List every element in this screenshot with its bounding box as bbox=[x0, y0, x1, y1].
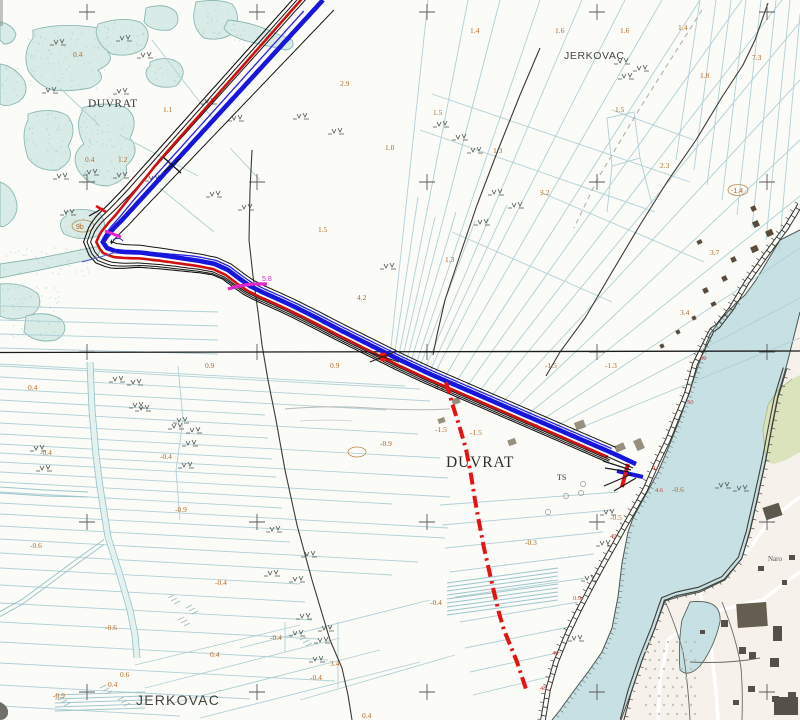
svg-text:DUVRAT: DUVRAT bbox=[446, 454, 514, 471]
svg-text:JERKOVAC: JERKOVAC bbox=[136, 692, 220, 708]
svg-text:2.3: 2.3 bbox=[660, 161, 670, 170]
svg-text:-0.4: -0.4 bbox=[310, 673, 322, 682]
svg-text:-1.4: -1.4 bbox=[731, 188, 743, 195]
svg-text:-1.5: -1.5 bbox=[435, 425, 447, 434]
svg-text:-0.4: -0.4 bbox=[270, 633, 282, 642]
svg-text:-0.4: -0.4 bbox=[160, 452, 172, 461]
svg-text:1.6: 1.6 bbox=[620, 26, 630, 35]
svg-text:-0.4: -0.4 bbox=[40, 448, 52, 457]
svg-text:0.4: 0.4 bbox=[73, 50, 83, 59]
svg-text:3.4: 3.4 bbox=[330, 659, 340, 668]
svg-text:0.4: 0.4 bbox=[362, 711, 372, 720]
svg-text:4.9: 4.9 bbox=[652, 465, 660, 472]
svg-text:49: 49 bbox=[552, 650, 559, 657]
svg-text:0.4: 0.4 bbox=[108, 680, 118, 689]
svg-text:-0.9: -0.9 bbox=[380, 439, 392, 448]
svg-text:50: 50 bbox=[700, 355, 707, 362]
svg-text:7.3: 7.3 bbox=[752, 53, 762, 62]
svg-text:-1.3: -1.3 bbox=[605, 361, 617, 370]
svg-text:-0.4: -0.4 bbox=[430, 598, 442, 607]
svg-text:50: 50 bbox=[687, 399, 694, 406]
svg-text:0.6: 0.6 bbox=[120, 670, 130, 679]
svg-text:DUVRAT: DUVRAT bbox=[88, 98, 138, 110]
svg-text:JERKOVAC: JERKOVAC bbox=[564, 50, 625, 62]
svg-text:3.4: 3.4 bbox=[680, 308, 690, 317]
svg-text:1.5: 1.5 bbox=[318, 225, 328, 234]
svg-text:-0.6: -0.6 bbox=[30, 541, 42, 550]
svg-text:48: 48 bbox=[540, 685, 547, 692]
svg-text:1.6: 1.6 bbox=[555, 26, 565, 35]
svg-text:0.9: 0.9 bbox=[205, 361, 215, 370]
svg-text:-0.9: -0.9 bbox=[53, 691, 65, 700]
svg-text:-1.5: -1.5 bbox=[545, 361, 557, 370]
svg-text:4.6: 4.6 bbox=[655, 487, 664, 494]
svg-text:-0.6: -0.6 bbox=[105, 623, 117, 632]
svg-text:-0.9: -0.9 bbox=[175, 505, 187, 514]
svg-text:Naro: Naro bbox=[768, 555, 782, 563]
svg-text:5.8: 5.8 bbox=[262, 276, 272, 283]
svg-text:-0.6: -0.6 bbox=[672, 485, 684, 494]
svg-text:1.0: 1.0 bbox=[385, 143, 395, 152]
svg-text:0.4: 0.4 bbox=[85, 155, 95, 164]
svg-text:4.2: 4.2 bbox=[357, 293, 367, 302]
svg-text:1.3: 1.3 bbox=[493, 146, 503, 155]
svg-text:TS: TS bbox=[557, 473, 566, 482]
svg-text:1.8: 1.8 bbox=[700, 71, 710, 80]
svg-text:1.4: 1.4 bbox=[470, 26, 480, 35]
svg-text:0.4: 0.4 bbox=[210, 650, 220, 659]
svg-text:0.9: 0.9 bbox=[573, 595, 581, 602]
svg-text:1.3: 1.3 bbox=[445, 255, 455, 264]
svg-text:1.1: 1.1 bbox=[163, 105, 173, 114]
svg-text:-1.5: -1.5 bbox=[470, 428, 482, 437]
svg-text:0.9: 0.9 bbox=[330, 361, 340, 370]
svg-text:-0.5: -0.5 bbox=[610, 513, 622, 522]
svg-text:1.5: 1.5 bbox=[615, 105, 625, 114]
svg-text:3.2: 3.2 bbox=[540, 188, 550, 197]
svg-text:9b: 9b bbox=[76, 224, 84, 231]
svg-text:1.5: 1.5 bbox=[433, 108, 443, 117]
svg-text:1.2: 1.2 bbox=[118, 155, 128, 164]
svg-text:0.4: 0.4 bbox=[28, 383, 38, 392]
svg-text:-0.3: -0.3 bbox=[525, 538, 537, 547]
svg-text:49: 49 bbox=[610, 533, 617, 540]
svg-text:3.7: 3.7 bbox=[710, 248, 720, 257]
svg-text:2.9: 2.9 bbox=[340, 79, 350, 88]
svg-text:-0.4: -0.4 bbox=[215, 578, 227, 587]
svg-text:1.4: 1.4 bbox=[678, 23, 688, 32]
